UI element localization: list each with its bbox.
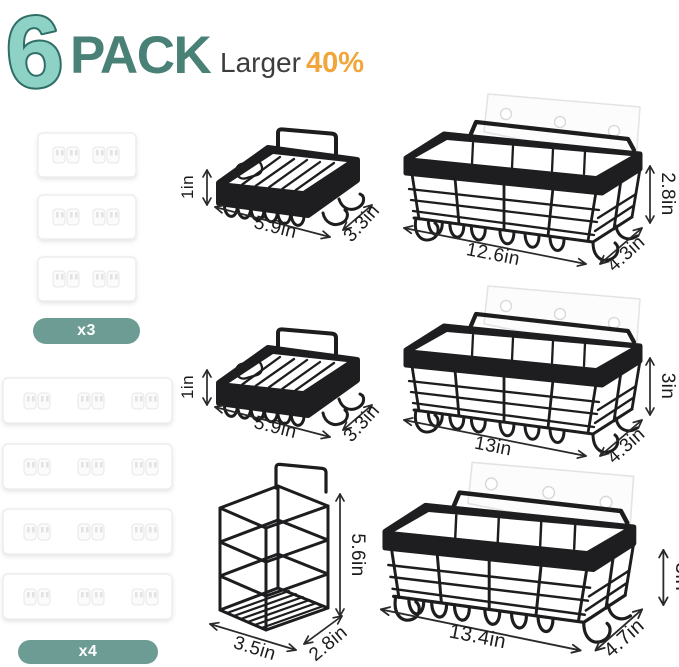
soap-dish-illustration: 1in 5.9in 3.3in — [181, 320, 391, 465]
depth-dimension-label: 2.8in — [305, 622, 352, 666]
dim-height: 2.8in — [646, 166, 678, 223]
pack-count-numeral: 6 — [1, 0, 67, 111]
x4-badge: x4 — [18, 640, 158, 664]
soap-dish-illustration: 1in 5.9in 3.3in — [181, 120, 391, 265]
dim-height: 3in — [659, 550, 679, 605]
width-dimension-label: 3.5in — [231, 632, 278, 665]
adhesive-pad-illustration — [37, 194, 137, 240]
toothbrush-holder-illustration: 5.6in 3.5in 2.8in — [190, 458, 370, 665]
adhesive-strip-illustration — [2, 443, 173, 490]
pack-logo: 6 PACK Larger 40% — [2, 0, 382, 92]
height-dimension-label: 3in — [671, 563, 679, 592]
pack-label: PACK — [70, 26, 211, 85]
adhesive-strip-illustration — [2, 377, 173, 424]
product-infographic: 6 PACK Larger 40% — [0, 0, 679, 667]
height-dimension-label: 2.8in — [657, 172, 678, 215]
adhesive-pad-illustration — [37, 256, 137, 302]
dim-height: 5.6in — [336, 494, 368, 616]
larger-label: Larger — [220, 47, 301, 78]
height-dimension-label: 3in — [657, 373, 678, 400]
dim-width: 3.5in — [210, 623, 296, 665]
dim-height: 3in — [646, 358, 678, 415]
shower-caddy-illustration: 3in 13in 4.3in — [388, 282, 678, 467]
dim-height: 1in — [178, 370, 211, 405]
base-grid — [227, 591, 324, 628]
dim-height: 1in — [178, 170, 211, 205]
shower-caddy-illustration: 2.8in 12.6in 4.3in — [388, 90, 678, 275]
holder-frame — [220, 486, 328, 630]
percent-label: 40% — [306, 47, 364, 79]
adhesive-pad-illustration — [37, 132, 137, 178]
x4-badge-label: x4 — [79, 643, 98, 661]
height-dimension-label: 1in — [178, 375, 197, 399]
x3-badge: x3 — [33, 318, 140, 344]
width-dimension-label: 12.6in — [464, 239, 521, 270]
x3-badge-label: x3 — [77, 322, 96, 340]
adhesive-strip-illustration — [2, 573, 173, 620]
dim-depth: 2.8in — [304, 616, 352, 666]
adhesive-strip-illustration — [2, 508, 173, 555]
shower-caddy-illustration: 3in 13.4in 4.7in — [366, 458, 674, 658]
width-dimension-label: 13.4in — [447, 620, 508, 653]
height-dimension-label: 5.6in — [347, 533, 368, 576]
height-dimension-label: 1in — [178, 175, 197, 199]
depth-dimension-label: 4.7in — [600, 614, 649, 662]
dim-depth: 4.3in — [600, 228, 649, 276]
